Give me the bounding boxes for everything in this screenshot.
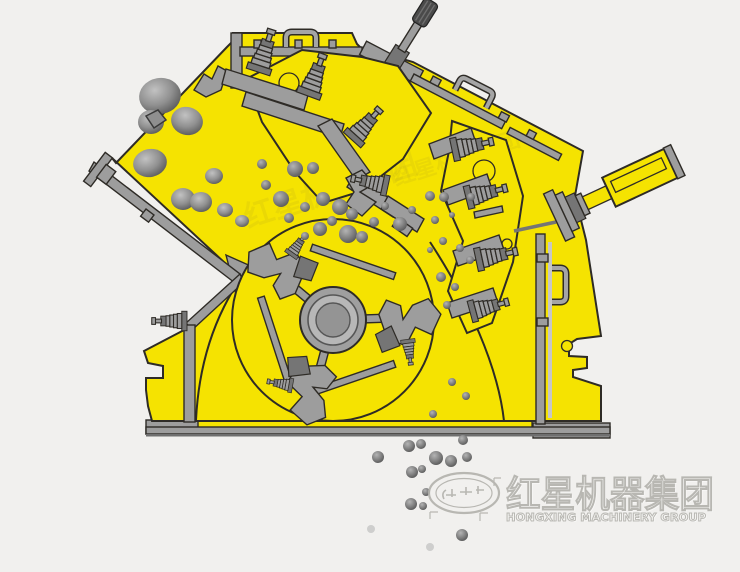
crusher-diagram-svg: 红星机器集团 红星机器集团 (0, 0, 740, 572)
rotor-hub (300, 287, 366, 353)
watermark-text-en: HONGXING MACHINERY GROUP (506, 512, 706, 524)
watermark-text-cn: 红星机器集团 (506, 473, 714, 516)
impact-crusher-illustration: 红星机器集团 红星机器集团 (0, 0, 740, 572)
front-strut (184, 325, 195, 422)
wall-hole (562, 341, 573, 352)
